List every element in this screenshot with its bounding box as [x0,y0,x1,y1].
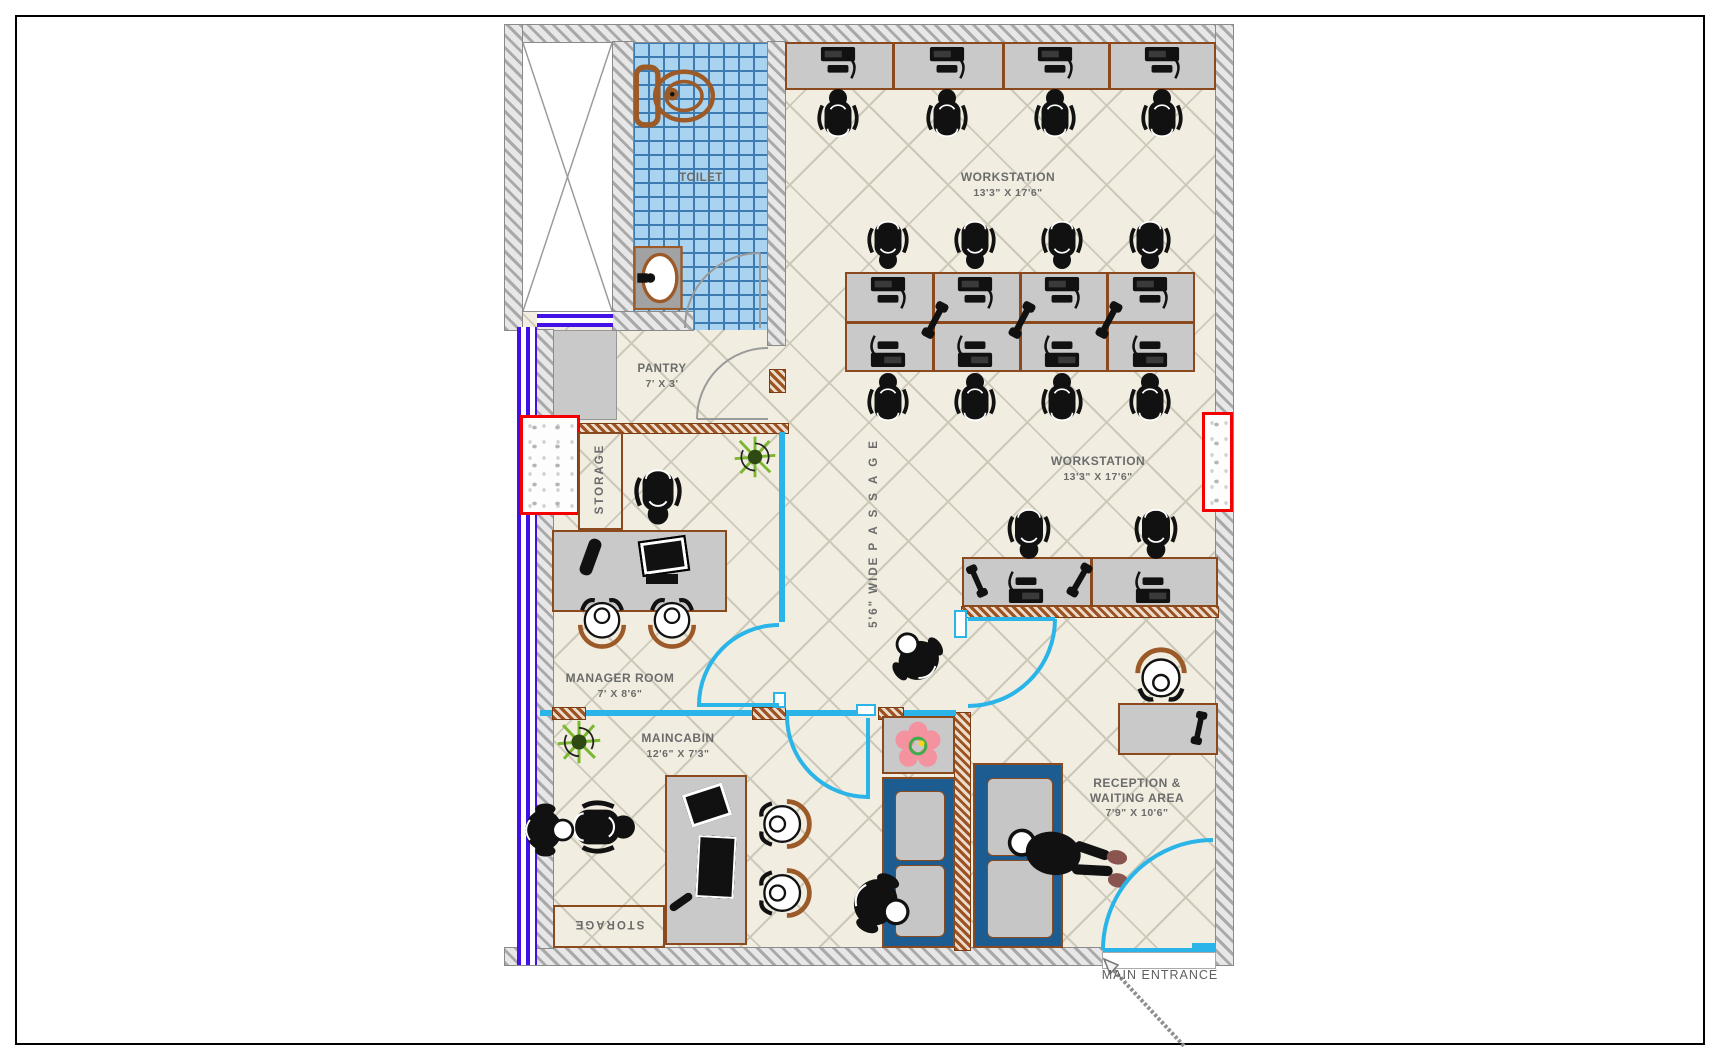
wall-workstation-lower [962,607,1218,617]
cpu-tower-icon [695,835,736,899]
wall-bottom [505,948,1103,965]
office-chair-icon [1031,86,1079,140]
guest-chair-icon [1130,642,1192,708]
office-chair-icon [951,370,999,424]
guest-chair-icon [754,863,816,923]
reception-label-line1: RECEPTION & [1093,776,1181,790]
keyboard-icon [646,574,678,584]
person-icon [518,798,582,862]
pc-icon [1040,276,1084,314]
wall-left-upper [505,25,522,330]
office-chair-icon [1126,218,1174,272]
guest-chair-icon [573,592,631,654]
pantry-dims: 7' X 3' [645,378,678,390]
passage-label: 5'6" WIDE PASSAGE [868,390,880,670]
pc-icon [953,276,997,314]
office-chair-icon [923,86,971,140]
reception-dims: 7'9" X 10'6" [1106,807,1169,819]
storage-upper-label: STORAGE [594,419,606,539]
basin-icon [633,246,683,310]
pantry-counter [553,330,617,420]
guest-chair-icon [754,794,816,854]
office-chair-icon [1038,218,1086,272]
pc-icon [866,276,910,314]
partition-passage-left [779,432,785,622]
office-chair-icon [1038,370,1086,424]
wall-toilet-right [768,42,785,345]
office-chair-icon [951,218,999,272]
pc-icon [1040,330,1084,368]
toilet-label: TOILET [679,172,723,184]
reception-label-line2: WAITING AREA [1090,791,1184,805]
pc-icon [1128,276,1172,314]
office-chair-icon [632,466,684,528]
slab-right [1202,412,1233,512]
maincabin-label: MAINCABIN [641,731,714,745]
workstation-lower-label: WORKSTATION [1051,454,1145,468]
office-chair-icon [1004,506,1054,562]
passage-label-prefix: 5'6" WIDE [868,551,880,628]
workstation-lower-dims: 13'3" X 17'6" [1063,471,1132,483]
pc-icon [1140,46,1184,84]
wall-shaft-toilet [613,42,633,312]
flower-icon [890,720,946,772]
lift-shaft [522,42,613,312]
lift-shaft-x [523,43,612,311]
door-jamb-workstation [954,610,967,638]
guest-chair-icon [643,592,701,654]
laptop-icon [638,535,691,577]
storage-lower-label: STORAGE [549,918,669,930]
office-chair-icon [1138,86,1186,140]
door-jamb-manager [773,692,786,708]
toilet-icon [632,60,718,132]
pc-icon [1004,566,1048,604]
passage-label-word: PASSAGE [868,432,880,550]
pc-icon [1033,46,1077,84]
slab-left [520,415,580,515]
office-chair-icon [864,218,912,272]
plant-icon [733,432,777,482]
pc-icon [816,46,860,84]
pc-icon [953,330,997,368]
pc-icon [1128,330,1172,368]
main-entrance-label: MAIN ENTRANCE [1102,968,1218,982]
floor-plan-sheet: TOILET WORKSTATION 13'3" X 17'6" PANTRY … [0,0,1717,1057]
pc-icon [1131,566,1175,604]
wall-reception-divider [955,713,970,950]
wall-block-pantry-door [770,370,785,392]
door-jamb-maincabin [856,704,876,716]
wall-toilet-bottom [613,312,693,330]
workstation-upper-label: WORKSTATION [961,170,1055,184]
office-chair-icon [1126,370,1174,424]
office-chair-icon [1131,506,1181,562]
manager-room-label: MANAGER ROOM [566,671,675,685]
wall-block-maincabin-mid [753,708,785,719]
pc-icon [866,330,910,368]
manager-room-dims: 7' X 8'6" [598,688,643,700]
entrance-threshold [1102,952,1216,969]
window-strip-horizontal [537,312,613,327]
pantry-label: PANTRY [638,363,687,375]
plant-icon [556,716,602,768]
workstation-upper-dims: 13'3" X 17'6" [973,187,1042,199]
office-chair-icon [814,86,862,140]
pc-icon [925,46,969,84]
wall-top [505,25,1233,42]
maincabin-dims: 12'6" X 7'3" [647,748,710,760]
